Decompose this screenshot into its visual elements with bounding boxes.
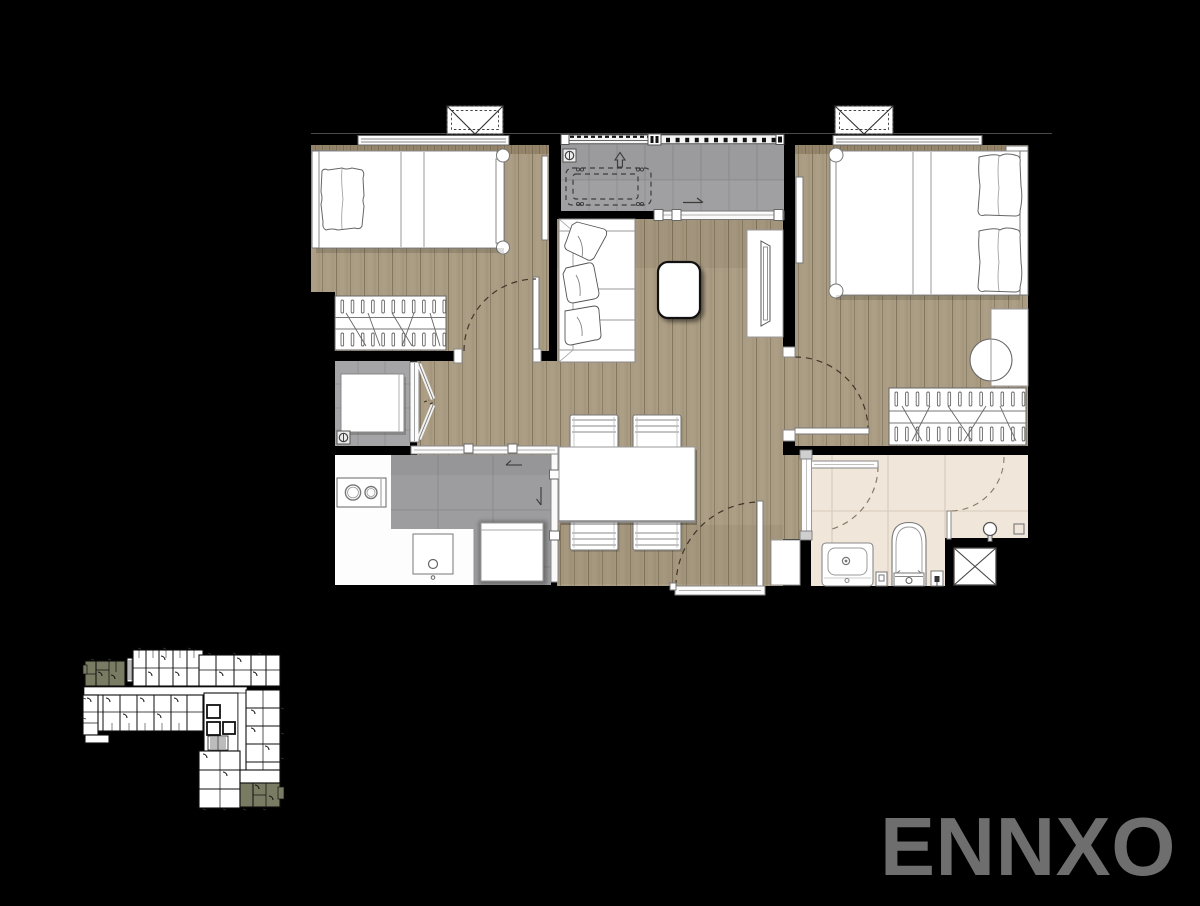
svg-text:ENNXO: ENNXO [880,801,1176,893]
